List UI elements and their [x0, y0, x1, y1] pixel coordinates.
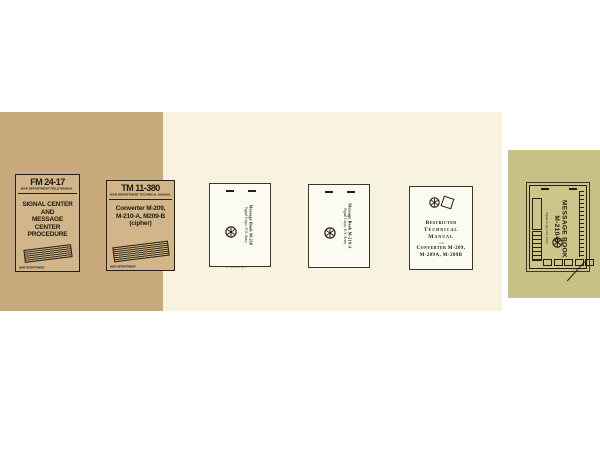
manual-title-line: M-210-A, M209-B: [110, 213, 171, 221]
footer-publisher: WAR DEPARTMENT: [19, 266, 45, 267]
signal-corps-seal-icon: [225, 225, 237, 243]
form-cell-row: [543, 259, 594, 266]
doc-number: FM 24-17: [19, 177, 76, 187]
manual-type-line: WAR DEPARTMENT FIELD MANUAL: [21, 187, 73, 189]
footer-publisher: WAR DEPARTMENT: [110, 265, 136, 266]
signal-corps-seal-icon: [429, 195, 440, 213]
form-cell: [543, 259, 552, 266]
message-book-m210-cover: Message Book M-210 Signal Corps, U.S. Ar…: [209, 183, 271, 267]
form-cell: [585, 259, 594, 266]
form-cell: [564, 259, 573, 266]
title-line: Technical Manual: [410, 227, 472, 241]
signal-corps-seal-icon: [324, 226, 336, 244]
manual-title-line: SIGNAL CENTER AND: [19, 201, 76, 216]
form-grid-strip: [532, 231, 542, 261]
and-label: and: [429, 242, 454, 244]
manual-title-line: PROCEDURE: [19, 231, 76, 239]
restricted-stamp: [23, 244, 72, 263]
form-box: [532, 198, 542, 230]
manual-cover-tm-11-380: TM 11-380 WAR DEPARTMENT TECHNICAL MANUA…: [106, 180, 175, 271]
message-book-m210a-cover: Message Book M-210-A Signal Corps, U.S. …: [308, 184, 370, 268]
message-book-m210b-cover: MESSAGE BOOK M-210-B Signal Corps, U.S. …: [526, 182, 590, 272]
staple-mark: [347, 191, 355, 193]
staple-mark: [248, 190, 256, 192]
header-rule: [109, 199, 172, 200]
staple-mark: [541, 188, 549, 190]
form-cell: [554, 259, 563, 266]
restricted-stamp: [112, 241, 169, 263]
manual-title-line: (cipher): [110, 220, 171, 228]
tilted-square-icon: [441, 196, 455, 210]
staple-mark: [325, 191, 333, 193]
restricted-label: Restricted: [410, 220, 472, 227]
signal-corps-seal-icon: [552, 235, 563, 253]
title-line: M-209A, M-209B: [410, 252, 472, 259]
book-subtitle-vertical: Signal Corps, U.S. Army: [545, 212, 549, 244]
manual-cover-fm-24-17: FM 24-17 WAR DEPARTMENT FIELD MANUAL SIG…: [15, 174, 80, 272]
book-subtitle-vertical: Signal Corps, U.S. Army: [343, 203, 347, 248]
book-title-vertical: Message Book M-210-A: [347, 203, 352, 248]
manual-type-line: WAR DEPARTMENT TECHNICAL MANUAL: [110, 193, 171, 195]
book-title-vertical: Message Book M-210: [248, 205, 253, 246]
book-subtitle-vertical: Signal Corps, U.S. Army: [244, 205, 248, 246]
manual-title-line: MESSAGE CENTER: [19, 216, 76, 231]
product-photo-six-signal-manuals: FM 24-17 WAR DEPARTMENT FIELD MANUAL SIG…: [0, 0, 600, 450]
title-line: Converter M-209,: [410, 245, 472, 252]
manual-title-line: Converter M-209,: [110, 205, 171, 213]
header-rule: [18, 193, 77, 194]
staple-mark: [569, 188, 577, 190]
doc-number: TM 11-380: [110, 183, 171, 193]
restricted-technical-manual-cover: Restricted Technical Manual and Converte…: [409, 186, 473, 270]
staple-mark: [226, 190, 234, 192]
ruler-scale-strip: [579, 191, 584, 257]
